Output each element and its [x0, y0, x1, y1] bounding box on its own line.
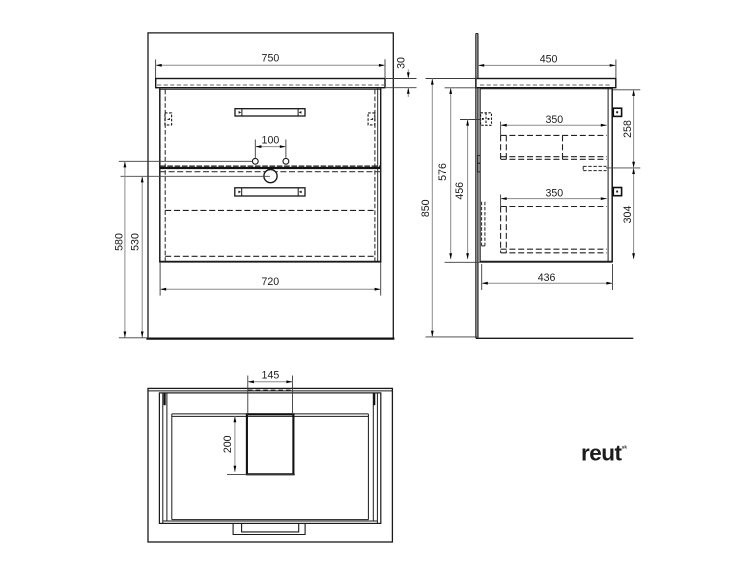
svg-text:350: 350 [545, 187, 563, 199]
svg-text:456: 456 [454, 182, 466, 200]
svg-text:850: 850 [420, 199, 432, 217]
svg-text:720: 720 [261, 276, 279, 288]
svg-text:450: 450 [540, 53, 558, 65]
svg-text:576: 576 [437, 163, 449, 181]
svg-text:530: 530 [130, 233, 142, 251]
svg-text:258: 258 [622, 120, 634, 138]
svg-text:350: 350 [545, 114, 563, 126]
svg-text:580: 580 [113, 233, 125, 251]
svg-text:200: 200 [222, 435, 234, 453]
svg-text:145: 145 [262, 369, 280, 381]
svg-text:sk: sk [622, 444, 628, 449]
svg-text:reut: reut [581, 441, 623, 466]
svg-text:30: 30 [396, 57, 408, 69]
svg-text:750: 750 [262, 53, 280, 65]
svg-text:100: 100 [262, 135, 280, 147]
svg-text:304: 304 [622, 206, 634, 224]
svg-text:436: 436 [538, 272, 556, 284]
